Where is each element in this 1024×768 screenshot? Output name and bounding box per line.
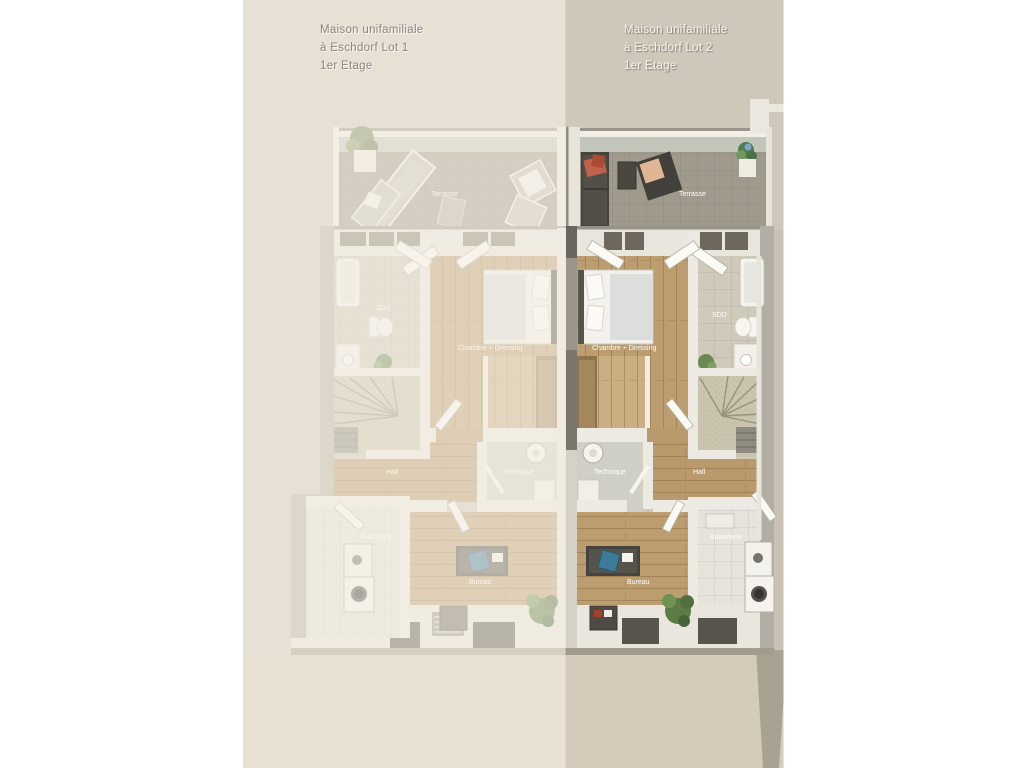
svg-text:Bureau: Bureau [627, 579, 650, 586]
svg-text:Hall: Hall [693, 469, 706, 476]
svg-text:Technique: Technique [594, 469, 626, 476]
svg-text:à Eschdorf Lot 1: à Eschdorf Lot 1 [320, 42, 409, 54]
svg-text:Terrasse: Terrasse [679, 191, 706, 198]
svg-text:Buanderie: Buanderie [710, 534, 742, 541]
svg-text:Chambre + Dressing: Chambre + Dressing [592, 345, 656, 352]
svg-text:Maison unifamiliale: Maison unifamiliale [624, 24, 728, 36]
svg-text:1er Etage: 1er Etage [624, 60, 677, 72]
svg-text:à Eschdorf Lot 2: à Eschdorf Lot 2 [624, 42, 713, 54]
svg-text:1er Etage: 1er Etage [320, 60, 373, 72]
svg-text:Maison unifamiliale: Maison unifamiliale [320, 24, 424, 36]
svg-text:SDD: SDD [712, 312, 727, 319]
